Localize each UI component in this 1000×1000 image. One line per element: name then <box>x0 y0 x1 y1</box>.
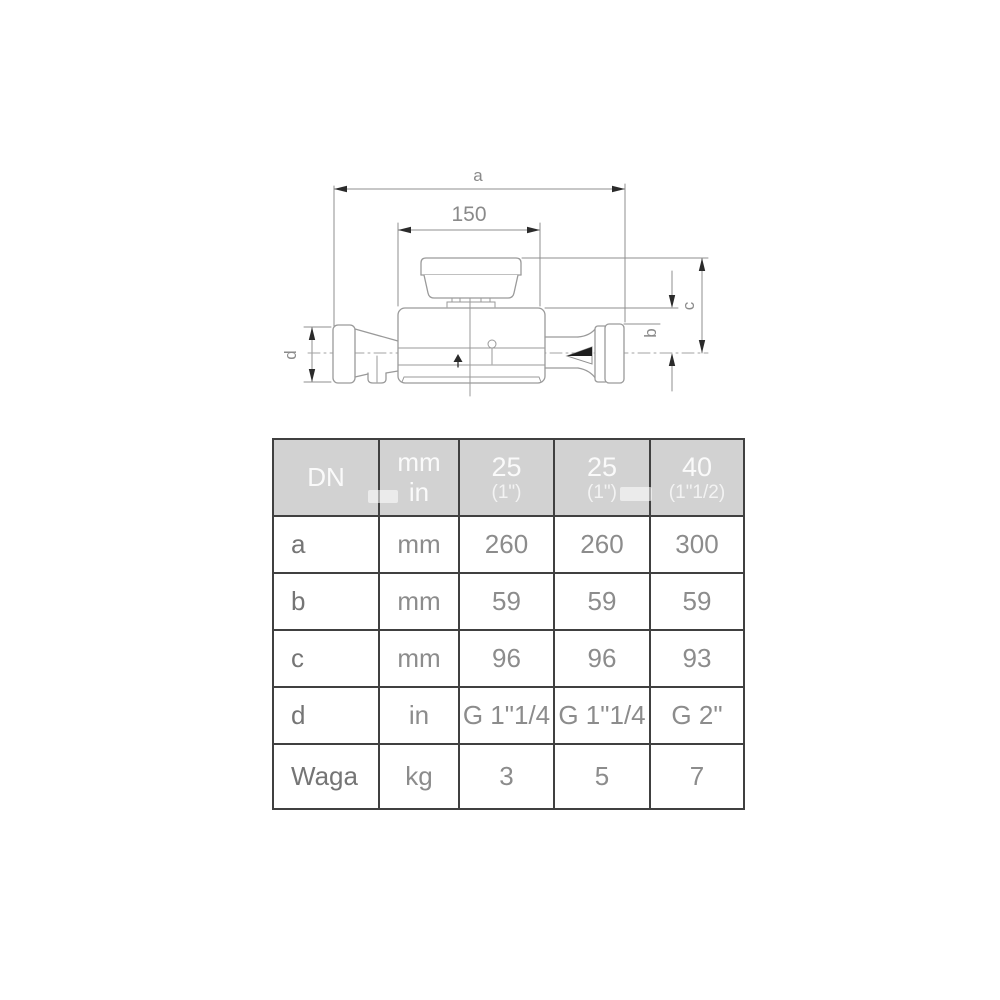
dimension-d-label: d <box>281 350 300 359</box>
header-unit-mm: mm <box>397 448 440 477</box>
variant-dn: 40 <box>682 452 712 482</box>
variant-dn: 25 <box>491 452 521 482</box>
meter-body <box>398 302 545 396</box>
row-waga-value-3: 7 <box>651 745 743 808</box>
variant-thread: (1") <box>492 482 522 503</box>
variant-dn: 25 <box>587 452 617 482</box>
row-b-value-2: 59 <box>555 574 649 629</box>
variant-thread: (1") <box>587 482 617 503</box>
dimension-b-label: b <box>641 328 660 337</box>
row-a-unit: mm <box>380 517 458 572</box>
row-waga-value-1: 3 <box>460 745 553 808</box>
header-cell-dn: DN <box>274 440 378 515</box>
page: a 150 d <box>0 0 1000 1000</box>
variant-thread: (1"1/2) <box>669 482 725 503</box>
row-c-unit: mm <box>380 631 458 686</box>
row-c-label: c <box>274 631 378 686</box>
row-d-value-2: G 1"1/4 <box>555 688 649 743</box>
row-c-value-1: 96 <box>460 631 553 686</box>
row-a-value-1: 260 <box>460 517 553 572</box>
row-waga-value-2: 5 <box>555 745 649 808</box>
row-waga-label: Waga <box>274 745 378 808</box>
dimension-c-label: c <box>679 301 698 310</box>
meter-left-coupling <box>333 325 398 383</box>
row-d-label: d <box>274 688 378 743</box>
row-a-value-3: 300 <box>651 517 743 572</box>
row-c-value-3: 93 <box>651 631 743 686</box>
row-b-value-1: 59 <box>460 574 553 629</box>
row-c-value-2: 96 <box>555 631 649 686</box>
header-cell-dn40: 40 (1"1/2) <box>651 440 743 515</box>
header-cell-dn25-1: 25 (1") <box>460 440 553 515</box>
row-waga-unit: kg <box>380 745 458 808</box>
dimension-a-label: a <box>473 166 483 185</box>
row-a-label: a <box>274 517 378 572</box>
dimension-150-label: 150 <box>451 203 486 226</box>
row-b-value-3: 59 <box>651 574 743 629</box>
register-head <box>421 258 521 307</box>
row-a-value-2: 260 <box>555 517 649 572</box>
header-unit-in: in <box>409 478 429 507</box>
row-d-unit: in <box>380 688 458 743</box>
header-cell-units: mm in <box>380 440 458 515</box>
dimension-d: d <box>281 327 331 382</box>
row-b-unit: mm <box>380 574 458 629</box>
row-d-value-1: G 1"1/4 <box>460 688 553 743</box>
spec-table: DN mm in 25 (1") 25 (1") 40 (1"1/2) <box>272 438 745 810</box>
row-b-label: b <box>274 574 378 629</box>
meter-drawing: a 150 d <box>268 148 724 429</box>
header-dn-label: DN <box>307 462 345 493</box>
header-cell-dn25-2: 25 (1") <box>555 440 649 515</box>
meter-drawing-svg: a 150 d <box>268 148 724 424</box>
row-d-value-3: G 2" <box>651 688 743 743</box>
